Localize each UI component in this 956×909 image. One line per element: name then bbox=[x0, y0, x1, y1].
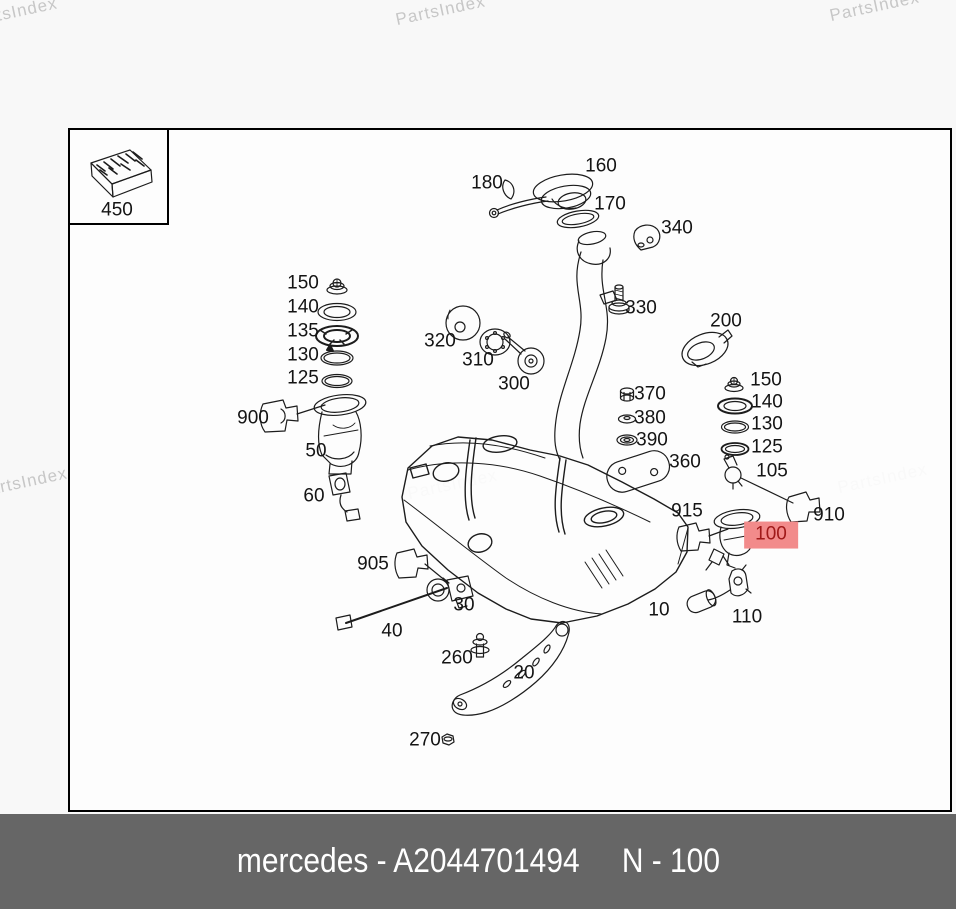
part-label-360[interactable]: 360 bbox=[669, 453, 701, 474]
part-label-380[interactable]: 380 bbox=[634, 409, 666, 430]
part-label-310[interactable]: 310 bbox=[462, 351, 494, 372]
part-label-900[interactable]: 900 bbox=[237, 409, 269, 430]
footer-reference: N - 100 bbox=[621, 842, 719, 881]
part-label-170[interactable]: 170 bbox=[594, 195, 626, 216]
parts-catalog-page: PartsIndexPartsIndexPartsIndexPartsIndex… bbox=[0, 0, 956, 909]
part-label-270[interactable]: 270 bbox=[409, 731, 441, 752]
part-label-390[interactable]: 390 bbox=[636, 431, 668, 452]
part-label-10[interactable]: 10 bbox=[648, 601, 669, 622]
part-label-150-right[interactable]: 150 bbox=[750, 371, 782, 392]
part-label-160[interactable]: 160 bbox=[585, 157, 617, 178]
part-label-140-right[interactable]: 140 bbox=[751, 393, 783, 414]
part-label-450[interactable]: 450 bbox=[101, 201, 133, 222]
part-label-320[interactable]: 320 bbox=[424, 332, 456, 353]
part-label-200[interactable]: 200 bbox=[710, 312, 742, 333]
part-label-180[interactable]: 180 bbox=[471, 174, 503, 195]
part-label-135-left[interactable]: 135 bbox=[287, 322, 319, 343]
footer-part-number: mercedes - A2044701494 bbox=[236, 842, 579, 881]
footer-bar: mercedes - A2044701494 N - 100 bbox=[0, 814, 956, 909]
part-label-910[interactable]: 910 bbox=[813, 506, 845, 527]
diagram-canvas bbox=[68, 128, 952, 812]
part-label-260[interactable]: 260 bbox=[441, 649, 473, 670]
part-label-370[interactable]: 370 bbox=[634, 385, 666, 406]
watermark-text-1: PartsIndex bbox=[394, 0, 487, 30]
part-label-100[interactable]: 100 bbox=[744, 522, 798, 549]
part-label-40[interactable]: 40 bbox=[381, 622, 402, 643]
watermark-text-0: PartsIndex bbox=[0, 0, 59, 32]
part-label-140-left[interactable]: 140 bbox=[287, 298, 319, 319]
part-label-915[interactable]: 915 bbox=[671, 502, 703, 523]
part-label-130-right[interactable]: 130 bbox=[751, 415, 783, 436]
part-label-905[interactable]: 905 bbox=[357, 555, 389, 576]
part-label-300[interactable]: 300 bbox=[498, 375, 530, 396]
part-label-125-right[interactable]: 125 bbox=[751, 438, 783, 459]
part-label-20[interactable]: 20 bbox=[513, 664, 534, 685]
part-label-110[interactable]: 110 bbox=[732, 608, 762, 629]
watermark-text-2: PartsIndex bbox=[828, 0, 921, 26]
part-label-30[interactable]: 30 bbox=[453, 596, 474, 617]
part-label-130-left[interactable]: 130 bbox=[287, 346, 319, 367]
watermark-text-3: PartsIndex bbox=[0, 463, 69, 502]
part-label-50[interactable]: 50 bbox=[305, 442, 326, 463]
part-label-340[interactable]: 340 bbox=[661, 219, 693, 240]
part-label-60[interactable]: 60 bbox=[303, 487, 324, 508]
part-label-105[interactable]: 105 bbox=[756, 462, 788, 483]
footer-text: mercedes - A2044701494 N - 100 bbox=[236, 842, 719, 881]
part-label-330[interactable]: 330 bbox=[625, 299, 657, 320]
part-label-150-left[interactable]: 150 bbox=[287, 274, 319, 295]
part-label-125-left[interactable]: 125 bbox=[287, 369, 319, 390]
